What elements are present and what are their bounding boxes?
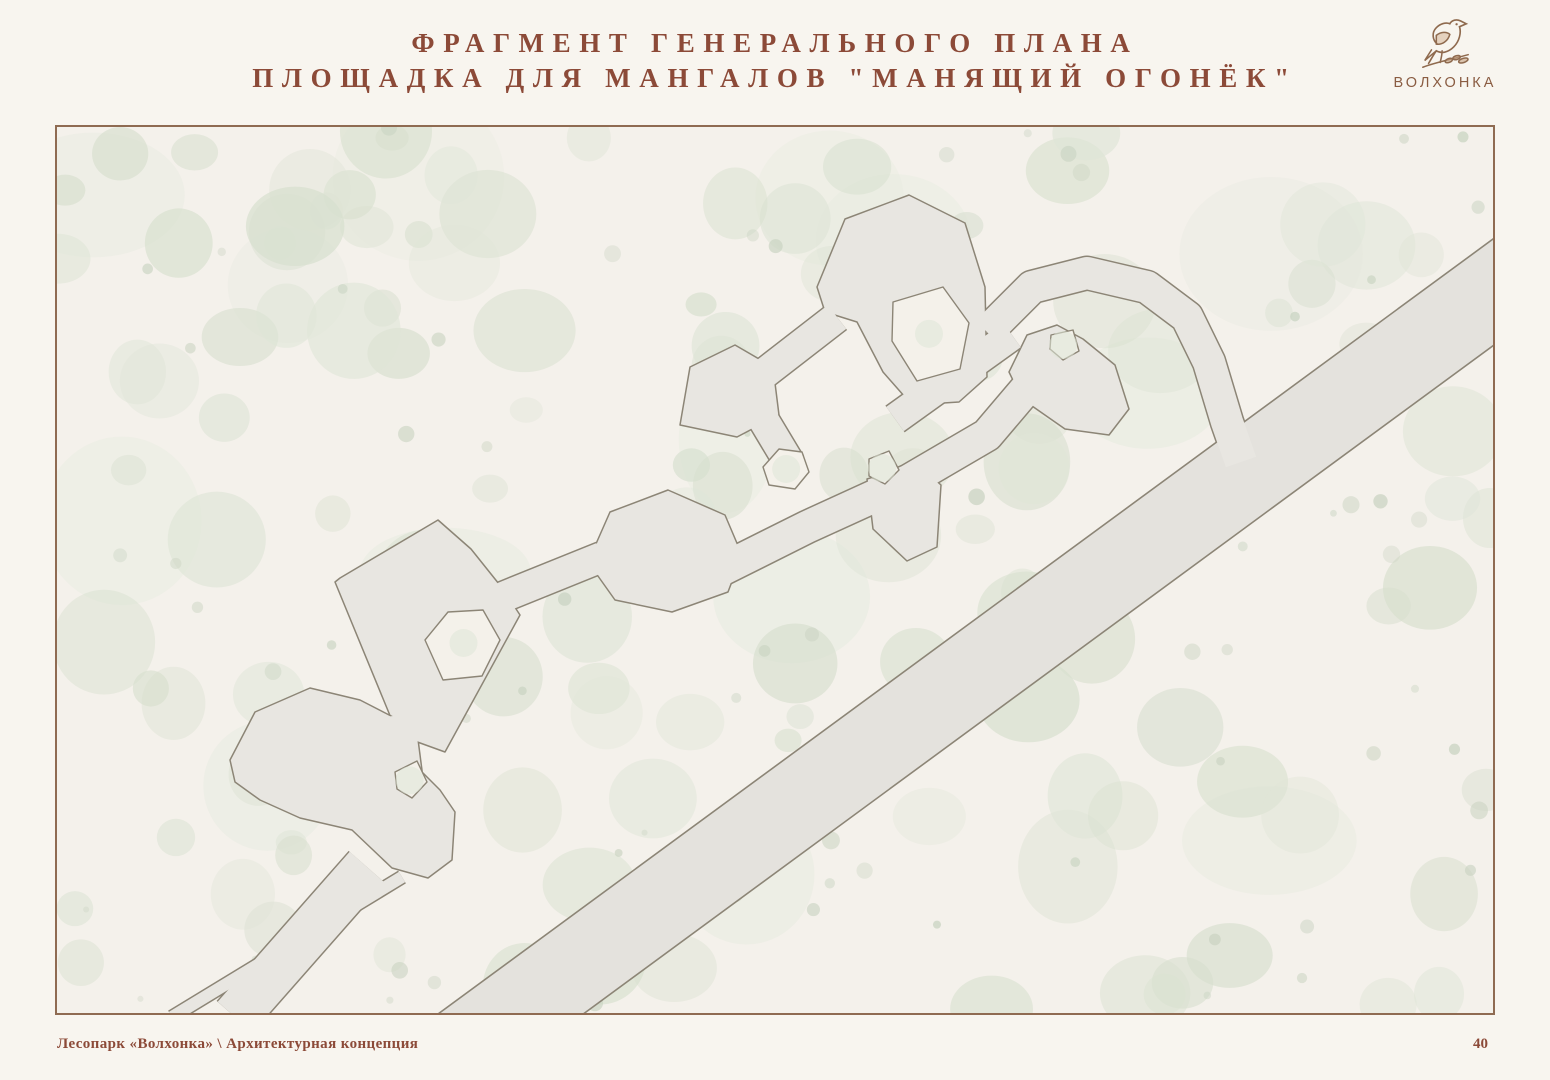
shrub-dot [518, 687, 527, 696]
tree-canopy [703, 167, 767, 239]
shrub-dot [1411, 685, 1419, 693]
tree-canopy [275, 835, 312, 875]
shrub-dot [1297, 973, 1307, 983]
footer-caption: Лесопарк «Волхонка» \ Архитектурная конц… [57, 1036, 418, 1053]
shrub-dot [192, 602, 203, 613]
tree-canopy [609, 759, 697, 839]
page-number: 40 [1473, 1036, 1488, 1053]
shrub-dot [142, 264, 153, 275]
tree-canopy [256, 284, 317, 348]
shrub-dot [1373, 494, 1387, 508]
tree-canopy [1261, 777, 1339, 854]
tree-canopy [168, 492, 266, 588]
shrub-dot [481, 441, 492, 452]
tree-canopy [246, 187, 345, 266]
shrub-dot [1070, 857, 1080, 867]
tree-canopy [1288, 260, 1335, 308]
logo-name: ВОЛХОНКА [1384, 75, 1506, 91]
island-tree [915, 320, 943, 348]
shrub-dot [1222, 644, 1233, 655]
tree-canopy [145, 208, 213, 277]
page-title-line2: ПЛОЩАДКА ДЛЯ МАНГАЛОВ "МАНЯЩИЙ ОГОНЁК" [0, 61, 1550, 96]
tree-canopy [58, 939, 104, 986]
shrub-dot [431, 332, 445, 346]
shrub-dot [218, 248, 226, 256]
shrub-dot [807, 903, 820, 916]
island-tree [450, 629, 478, 657]
shrub-dot [113, 548, 127, 562]
tree-canopy [775, 729, 802, 753]
shrub-dot [1342, 496, 1359, 513]
tree-canopy [211, 859, 275, 930]
shrub-dot [1216, 757, 1225, 766]
tree-canopy [111, 455, 146, 485]
shrub-dot [615, 849, 623, 857]
shrub-dot [1184, 644, 1200, 660]
shrub-dot [1465, 865, 1476, 876]
shrub-dot [1290, 312, 1300, 322]
tree-canopy [92, 127, 148, 180]
shrub-dot [338, 284, 348, 294]
tree-canopy [315, 495, 350, 531]
shrub-dot [398, 426, 414, 442]
tree-canopy [473, 289, 575, 372]
shrub-dot [1300, 920, 1314, 934]
shrub-dot [1238, 541, 1248, 551]
tree-canopy [171, 134, 218, 170]
page-title-line1: ФРАГМЕНТ ГЕНЕРАЛЬНОГО ПЛАНА [0, 26, 1550, 61]
shrub-dot [1330, 510, 1337, 517]
shrub-dot [83, 907, 89, 913]
tree-canopy [823, 139, 891, 195]
tree-canopy [425, 146, 478, 204]
tree-canopy [956, 514, 995, 544]
shrub-dot [933, 921, 941, 929]
tree-canopy [1088, 781, 1158, 850]
tree-canopy [472, 475, 508, 503]
island-tree [396, 766, 424, 794]
tree-canopy [1280, 182, 1365, 266]
shrub-dot [1472, 201, 1485, 214]
shrub-dot [265, 663, 282, 680]
shrub-dot [428, 976, 441, 989]
tree-canopy [157, 819, 195, 856]
shrub-dot [1449, 744, 1460, 755]
tree-canopy [1265, 299, 1293, 328]
volkhonka-logo: ВОЛХОНКА [1384, 18, 1506, 91]
shrub-dot [1367, 275, 1376, 284]
island-tree [868, 454, 896, 482]
tree-canopy [656, 694, 724, 750]
tree-canopy [142, 667, 206, 740]
shrub-dot [642, 830, 648, 836]
tree-canopy [483, 767, 562, 852]
tree-canopy [893, 788, 966, 845]
masterplan-frame [55, 125, 1495, 1015]
page-title: ФРАГМЕНТ ГЕНЕРАЛЬНОГО ПЛАНА ПЛОЩАДКА ДЛЯ… [0, 26, 1550, 96]
tree-canopy [1137, 688, 1223, 767]
tree-canopy [199, 393, 250, 441]
tree-canopy [686, 292, 717, 316]
shrub-dot [185, 343, 196, 354]
shrub-dot [170, 558, 181, 569]
shrub-dot [805, 627, 819, 641]
tree-canopy [571, 676, 643, 749]
shrub-dot [1073, 164, 1090, 181]
tree-canopy [409, 225, 500, 301]
shrub-dot [759, 645, 771, 657]
shrub-dot [747, 229, 759, 241]
shrub-dot [731, 693, 741, 703]
shrub-dot [137, 996, 143, 1002]
shrub-dot [1061, 146, 1077, 162]
shrub-dot [604, 245, 621, 262]
masterplan-drawing [57, 127, 1493, 1013]
shrub-dot [1383, 546, 1400, 563]
shrub-dot [327, 640, 337, 650]
island-tree [772, 455, 800, 483]
island-tree [1049, 331, 1077, 359]
shrub-dot [391, 962, 408, 979]
shrub-dot [1470, 802, 1488, 820]
shrub-dot [1204, 992, 1212, 1000]
shrub-dot [1366, 746, 1381, 761]
tree-canopy [510, 397, 543, 422]
shrub-dot [1209, 934, 1221, 946]
tree-canopy [1399, 233, 1444, 278]
tree-canopy [753, 624, 838, 704]
shrub-dot [1457, 131, 1468, 142]
bird-icon [1416, 18, 1474, 74]
shrub-dot [558, 592, 571, 605]
shrub-dot [1024, 129, 1032, 137]
tree-canopy [307, 283, 400, 379]
shrub-dot [968, 488, 985, 505]
shrub-dot [1399, 134, 1409, 144]
shrub-dot [386, 997, 393, 1004]
tree-canopy [786, 704, 813, 729]
shrub-dot [769, 239, 783, 253]
tree-canopy [999, 433, 1070, 504]
shrub-dot [825, 878, 835, 888]
shrub-dot [1411, 511, 1427, 527]
tree-canopy [109, 340, 166, 405]
shrub-dot [856, 863, 872, 879]
tree-canopy [57, 590, 155, 695]
shrub-dot [939, 147, 954, 162]
